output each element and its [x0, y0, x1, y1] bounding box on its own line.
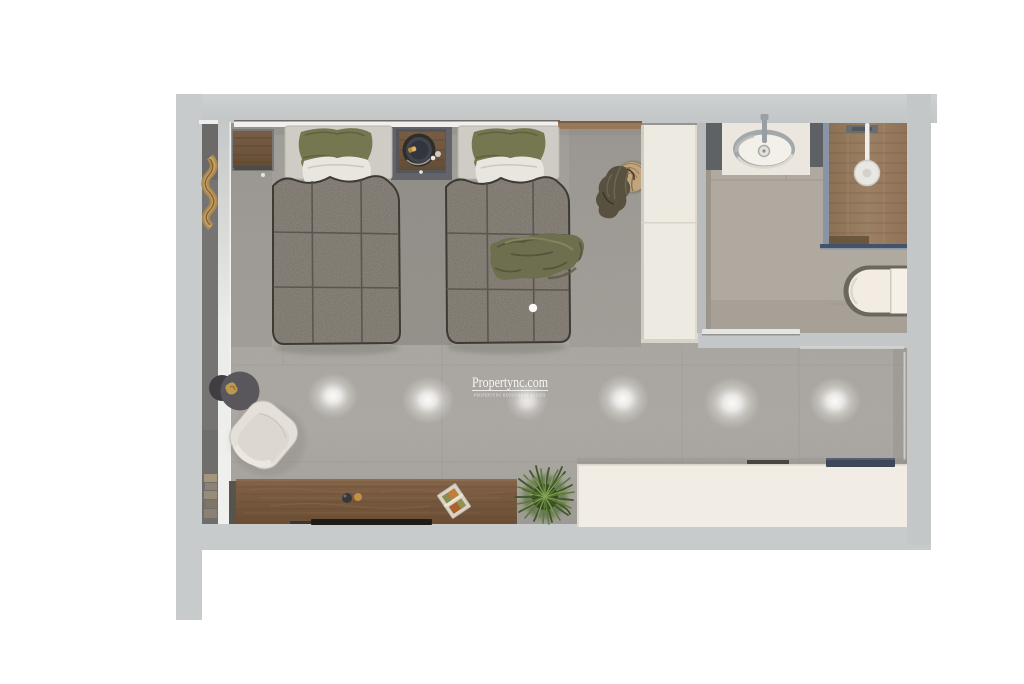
svg-text:PROPERTYNC REDUS REAL ESTATE: PROPERTYNC REDUS REAL ESTATE	[474, 393, 546, 398]
svg-text:Propertync.com: Propertync.com	[472, 375, 548, 391]
